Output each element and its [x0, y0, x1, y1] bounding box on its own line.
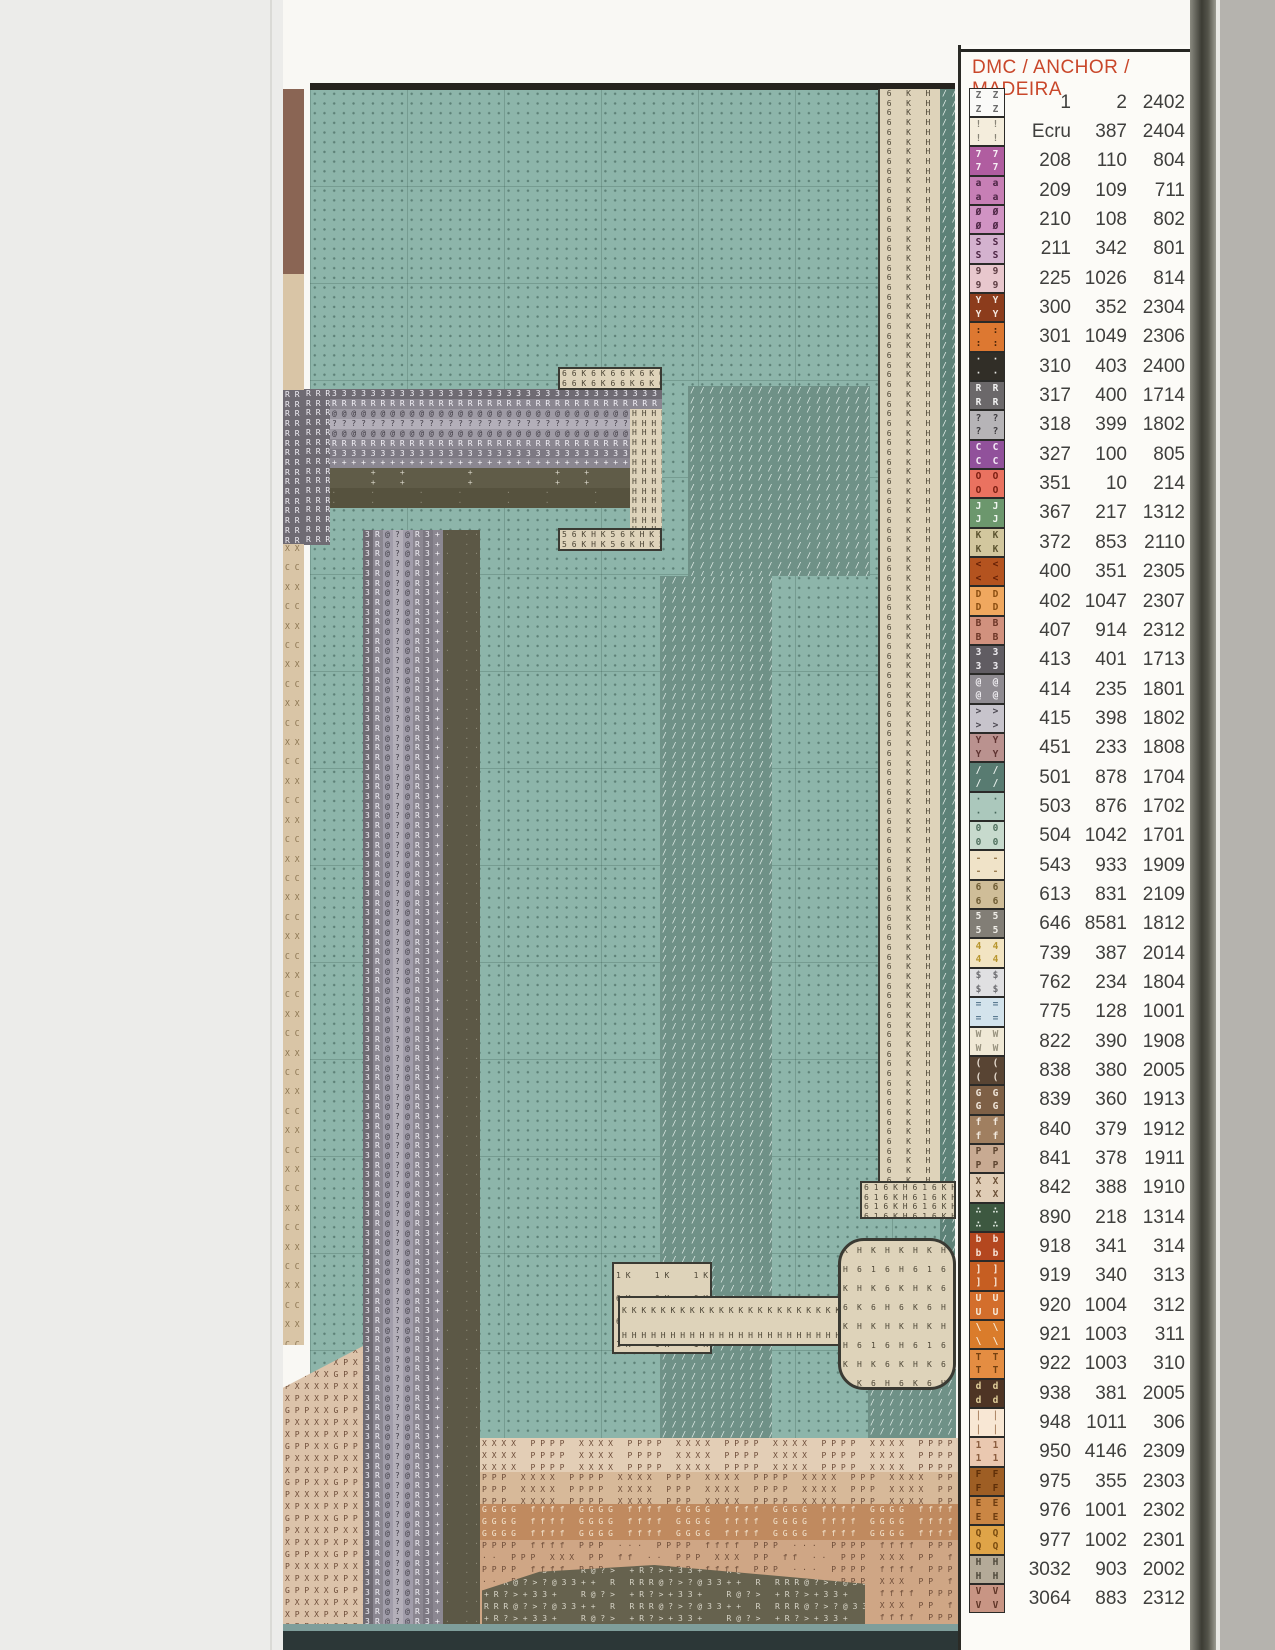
dmc-value: 301: [1015, 326, 1071, 348]
madeira-value: 1909: [1127, 855, 1185, 877]
pole-shadow-column: · ·· · · · · ·· · · · · ·· · · · · ·· · …: [443, 530, 480, 1650]
symbol-glyph: =: [993, 1000, 999, 1009]
symbol-glyph: Z: [976, 91, 982, 100]
crossarm-row-at-top: @@@@@@@@@@@@@@@@@@@@@@@@@@@@@@@@@@@@@ @@…: [330, 409, 662, 419]
madeira-value: 805: [1127, 444, 1185, 466]
dmc-value: 400: [1015, 561, 1071, 583]
dmc-value: 413: [1015, 649, 1071, 671]
symbol-glyph: 7: [993, 150, 999, 159]
symbol-glyph: W: [976, 1044, 982, 1053]
symbol-glyph: $: [993, 971, 999, 980]
symbol-glyph: 6: [993, 897, 999, 906]
symbol-glyph: U: [993, 1294, 999, 1303]
madeira-value: 1804: [1127, 972, 1185, 994]
legend-swatch: 3 3 3 3: [969, 645, 1005, 674]
legend-swatch: D D D D: [969, 586, 1005, 615]
anchor-value: 831: [1071, 884, 1127, 906]
symbol-glyph: f: [993, 1132, 999, 1141]
anchor-value: 217: [1071, 502, 1127, 524]
symbol-glyph: ·: [976, 369, 982, 378]
symbol-glyph: Y: [993, 310, 999, 319]
anchor-value: 1047: [1071, 591, 1127, 613]
legend-swatch: 5 5 5 5: [969, 909, 1005, 938]
symbol-glyph: C: [976, 457, 982, 466]
madeira-value: 2309: [1127, 1441, 1185, 1463]
symbol-glyph: 7: [993, 163, 999, 172]
symbol-glyph: -: [976, 867, 982, 876]
symbol-glyph: S: [976, 238, 982, 247]
symbol-glyph: <: [993, 560, 999, 569]
legend-row: · · · · 310 403 2400: [969, 352, 1186, 381]
legend-row: 4 4 4 4 739 387 2014: [969, 939, 1186, 968]
symbol-glyph: ·: [976, 355, 982, 364]
symbol-glyph: b: [993, 1249, 999, 1258]
symbol-glyph: G: [976, 1102, 982, 1111]
symbol-glyph: R: [993, 384, 999, 393]
anchor-value: 1049: [1071, 326, 1127, 348]
symbol-glyph: a: [976, 193, 982, 202]
anchor-value: 398: [1071, 708, 1127, 730]
legend-swatch: 9 9 9 9: [969, 264, 1005, 293]
symbol-glyph: |: [976, 1411, 982, 1420]
legend-row: 7 7 7 7 208 110 804: [969, 147, 1186, 176]
symbol-glyph: b: [976, 1235, 982, 1244]
symbol-glyph: K: [993, 531, 999, 540]
symbol-glyph: F: [976, 1484, 982, 1493]
dmc-value: 919: [1015, 1265, 1071, 1287]
madeira-value: 2301: [1127, 1530, 1185, 1552]
madeira-value: 1913: [1127, 1089, 1185, 1111]
symbol-glyph: !: [976, 134, 982, 143]
madeira-value: 2307: [1127, 591, 1185, 613]
legend-row: V V V V 3064 883 2312: [969, 1585, 1186, 1614]
legend-swatch: J J J J: [969, 498, 1005, 527]
madeira-value: 2304: [1127, 297, 1185, 319]
octagon-joint: KHKHKHKHKHK H616H616H61 KHK6KHK6KHK 6K6H…: [838, 1238, 956, 1390]
symbol-glyph: K: [976, 545, 982, 554]
symbol-glyph: a: [976, 179, 982, 188]
legend-row: F F F F 975 355 2303: [969, 1467, 1186, 1496]
legend-row: > > > > 415 398 1802: [969, 704, 1186, 733]
symbol-glyph: G: [993, 1089, 999, 1098]
dmc-value: 646: [1015, 913, 1071, 935]
book-spine-edge: [1190, 0, 1216, 1650]
legend-row: P P P P 841 378 1911: [969, 1144, 1186, 1173]
symbol-glyph: R: [976, 398, 982, 407]
symbol-glyph: $: [976, 971, 982, 980]
dmc-value: 300: [1015, 297, 1071, 319]
anchor-value: 2: [1071, 92, 1127, 114]
anchor-value: 110: [1071, 150, 1127, 172]
symbol-glyph: J: [976, 515, 982, 524]
symbol-glyph: Q: [993, 1542, 999, 1551]
dmc-value: 922: [1015, 1353, 1071, 1375]
symbol-glyph: V: [993, 1601, 999, 1610]
anchor-value: 352: [1071, 297, 1127, 319]
madeira-value: 1910: [1127, 1177, 1185, 1199]
symbol-glyph: 1: [993, 1441, 999, 1450]
madeira-value: 1312: [1127, 502, 1185, 524]
symbol-glyph: Y: [993, 736, 999, 745]
legend-row: · · · · 503 876 1702: [969, 792, 1186, 821]
legend-row: Y Y Y Y 451 233 1808: [969, 734, 1186, 763]
anchor-value: 387: [1071, 943, 1127, 965]
legend-row: J J J J 367 217 1312: [969, 499, 1186, 528]
symbol-glyph: Q: [976, 1542, 982, 1551]
symbol-glyph: !: [976, 120, 982, 129]
symbol-glyph: 7: [976, 163, 982, 172]
symbol-glyph: R: [976, 384, 982, 393]
symbol-glyph: a: [993, 193, 999, 202]
dmc-value: Ecru: [1015, 121, 1071, 143]
legend-row: T T T T 922 1003 310: [969, 1350, 1186, 1379]
anchor-value: 401: [1071, 649, 1127, 671]
symbol-glyph: ·: [993, 355, 999, 364]
anchor-value: 1003: [1071, 1324, 1127, 1346]
legend-row: : : : : 301 1049 2306: [969, 323, 1186, 352]
symbol-glyph: 4: [993, 942, 999, 951]
madeira-value: 2005: [1127, 1383, 1185, 1405]
symbol-glyph: V: [993, 1587, 999, 1596]
symbol-glyph: 6: [993, 883, 999, 892]
symbol-glyph: J: [976, 502, 982, 511]
dmc-value: 950: [1015, 1441, 1071, 1463]
madeira-value: 1912: [1127, 1119, 1185, 1141]
legend-swatch: 1 1 1 1: [969, 1437, 1005, 1466]
legend-row: U U U U 920 1004 312: [969, 1291, 1186, 1320]
crossarm-shadow-upper: + + + + + + + + + + + + + + + + + +: [330, 468, 662, 488]
symbol-glyph: <: [976, 574, 982, 583]
terrain-right-band-x: XXXX PPPP XXXX PPPP XXXX PPPP XXXX PPPP …: [480, 1438, 958, 1472]
legend-row: @ @ @ @ 414 235 1801: [969, 675, 1186, 704]
legend-row: G G G G 839 360 1913: [969, 1086, 1186, 1115]
symbol-glyph: :: [976, 339, 982, 348]
symbol-glyph: H: [993, 1558, 999, 1567]
symbol-glyph: f: [976, 1118, 982, 1127]
legend-swatch: d d d d: [969, 1379, 1005, 1408]
symbol-glyph: 4: [976, 955, 982, 964]
symbol-glyph: S: [993, 238, 999, 247]
symbol-glyph: X: [976, 1190, 982, 1199]
legend-swatch: | | | |: [969, 1408, 1005, 1437]
madeira-value: 1802: [1127, 708, 1185, 730]
legend-row: a a a a 209 109 711: [969, 176, 1186, 205]
dmc-value: 839: [1015, 1089, 1071, 1111]
left-edge-strip-brown: [283, 89, 304, 274]
anchor-value: 390: [1071, 1031, 1127, 1053]
symbol-glyph: P: [993, 1147, 999, 1156]
symbol-glyph: U: [976, 1308, 982, 1317]
dmc-value: 310: [1015, 356, 1071, 378]
symbol-glyph: 9: [993, 281, 999, 290]
symbol-glyph: 6: [976, 883, 982, 892]
anchor-value: 400: [1071, 385, 1127, 407]
legend-row: $ $ $ $ 762 234 1804: [969, 968, 1186, 997]
dmc-value: 225: [1015, 268, 1071, 290]
legend-swatch: 0 0 0 0: [969, 821, 1005, 850]
symbol-glyph: ]: [993, 1265, 999, 1274]
madeira-value: 2305: [1127, 561, 1185, 583]
anchor-value: 399: [1071, 414, 1127, 436]
legend-swatch: = = = =: [969, 997, 1005, 1026]
legend-row: / / / / 501 878 1704: [969, 763, 1186, 792]
pole-col-3-right: 3333 3333 3333 3333 3333 3333 3333 3333 …: [423, 530, 433, 1650]
symbol-glyph: >: [993, 707, 999, 716]
symbol-glyph: |: [976, 1425, 982, 1434]
crossarm-end-steps-top: 66K6K66K6K66K 66K6K66K6K66K 66K6K66K6K66…: [558, 367, 662, 390]
symbol-glyph: $: [993, 985, 999, 994]
dmc-value: 211: [1015, 238, 1071, 260]
symbol-glyph: G: [993, 1102, 999, 1111]
legend-swatch: ( ( ( (: [969, 1056, 1005, 1085]
symbol-glyph: O: [993, 486, 999, 495]
anchor-value: 914: [1071, 620, 1127, 642]
legend-swatch: @ @ @ @: [969, 674, 1005, 703]
madeira-value: 2400: [1127, 356, 1185, 378]
madeira-value: 2109: [1127, 884, 1185, 906]
pole-col-plus: ++++ ++++ ++++ ++++ ++++ ++++ ++++ ++++ …: [433, 530, 443, 1650]
symbol-glyph: H: [976, 1558, 982, 1567]
legend-row: C C C C 327 100 805: [969, 440, 1186, 469]
legend-swatch: B B B B: [969, 616, 1005, 645]
dmc-value: 504: [1015, 825, 1071, 847]
symbol-glyph: S: [993, 251, 999, 260]
madeira-value: 1908: [1127, 1031, 1185, 1053]
symbol-glyph: 5: [976, 926, 982, 935]
symbol-glyph: P: [993, 1161, 999, 1170]
anchor-value: 108: [1071, 209, 1127, 231]
symbol-glyph: Y: [976, 310, 982, 319]
symbol-glyph: 1: [976, 1441, 982, 1450]
madeira-value: 2312: [1127, 1588, 1185, 1610]
anchor-value: 387: [1071, 121, 1127, 143]
symbol-glyph: O: [993, 472, 999, 481]
symbol-glyph: P: [976, 1161, 982, 1170]
symbol-glyph: (: [993, 1059, 999, 1068]
symbol-glyph: <: [993, 574, 999, 583]
symbol-glyph: 5: [993, 926, 999, 935]
dmc-value: 402: [1015, 591, 1071, 613]
anchor-value: 1042: [1071, 825, 1127, 847]
legend-swatch: > > > >: [969, 704, 1005, 733]
madeira-value: 801: [1127, 238, 1185, 260]
legend-row: ? ? ? ? 318 399 1802: [969, 411, 1186, 440]
legend-swatch: Z Z Z Z: [969, 88, 1005, 117]
anchor-value: 388: [1071, 1177, 1127, 1199]
symbol-glyph: f: [993, 1118, 999, 1127]
madeira-value: 2404: [1127, 121, 1185, 143]
dmc-value: 948: [1015, 1412, 1071, 1434]
legend-row: d d d d 938 381 2005: [969, 1379, 1186, 1408]
symbol-glyph: <: [976, 560, 982, 569]
symbol-glyph: /: [976, 779, 982, 788]
symbol-glyph: K: [993, 545, 999, 554]
madeira-value: 1701: [1127, 825, 1185, 847]
legend-row: b b b b 918 341 314: [969, 1232, 1186, 1261]
legend-row: D D D D 402 1047 2307: [969, 587, 1186, 616]
symbol-glyph: 1: [993, 1454, 999, 1463]
symbol-glyph: W: [993, 1044, 999, 1053]
symbol-glyph: \: [976, 1323, 982, 1332]
symbol-glyph: Ø: [993, 222, 999, 231]
legend-swatch: H H H H: [969, 1555, 1005, 1584]
symbol-glyph: \: [993, 1323, 999, 1332]
anchor-value: 128: [1071, 1001, 1127, 1023]
symbol-glyph: >: [993, 721, 999, 730]
symbol-glyph: ∴: [993, 1220, 999, 1229]
legend-row: E E E E 976 1001 2302: [969, 1497, 1186, 1526]
madeira-value: 2002: [1127, 1559, 1185, 1581]
symbol-glyph: (: [976, 1059, 982, 1068]
dmc-value: 921: [1015, 1324, 1071, 1346]
legend-swatch: ∴ ∴ ∴ ∴: [969, 1203, 1005, 1232]
madeira-value: 2402: [1127, 92, 1185, 114]
left-edge-strip-gray: RRRRR RRRRR RRRRR RRRRR RRRRR RRRRR RRRR…: [283, 390, 304, 544]
symbol-glyph: d: [993, 1382, 999, 1391]
madeira-value: 1911: [1127, 1148, 1185, 1170]
symbol-glyph: J: [993, 502, 999, 511]
symbol-glyph: ]: [993, 1278, 999, 1287]
symbol-glyph: Y: [993, 296, 999, 305]
crossarm-row-3-top: 3333333333333333333333333333333333333 33…: [330, 389, 662, 399]
anchor-value: 853: [1071, 532, 1127, 554]
legend-row: \ \ \ \ 921 1003 311: [969, 1320, 1186, 1349]
pole-col-r-left: RRRR RRRR RRRR RRRR RRRR RRRR RRRR RRRR …: [373, 530, 383, 1650]
symbol-glyph: Y: [976, 296, 982, 305]
legend-row: 9 9 9 9 225 1026 814: [969, 264, 1186, 293]
anchor-value: 1002: [1071, 1530, 1127, 1552]
symbol-glyph: (: [993, 1073, 999, 1082]
legend-swatch: S S S S: [969, 234, 1005, 263]
crossarm-end-kh-strip: HHHHHH HHHHHH HHHHHH HHHHHH HHHHHH HHHHH…: [630, 409, 662, 529]
chart-top-border: [310, 83, 955, 90]
symbol-glyph: b: [993, 1235, 999, 1244]
symbol-glyph: -: [976, 854, 982, 863]
legend-row: B B B B 407 914 2312: [969, 616, 1186, 645]
symbol-glyph: Ø: [993, 208, 999, 217]
symbol-glyph: ]: [976, 1278, 982, 1287]
legend-row: 5 5 5 5 646 8581 1812: [969, 910, 1186, 939]
symbol-glyph: @: [993, 678, 999, 687]
legend-row: ∴ ∴ ∴ ∴ 890 218 1314: [969, 1203, 1186, 1232]
symbol-glyph: C: [993, 457, 999, 466]
symbol-glyph: 9: [976, 267, 982, 276]
symbol-glyph: E: [993, 1513, 999, 1522]
anchor-value: 903: [1071, 1559, 1127, 1581]
anchor-value: 1026: [1071, 268, 1127, 290]
dmc-value: 208: [1015, 150, 1071, 172]
legend-swatch: U U U U: [969, 1291, 1005, 1320]
symbol-glyph: \: [993, 1337, 999, 1346]
symbol-glyph: |: [993, 1425, 999, 1434]
symbol-glyph: Y: [976, 736, 982, 745]
dmc-value: 3032: [1015, 1559, 1071, 1581]
symbol-glyph: B: [993, 619, 999, 628]
crossarm-row-r-bottom: RRRRRRRRRRRRRRRRRRRRRRRRRRRRRRRRRRRRR RR…: [330, 439, 662, 449]
madeira-value: 214: [1127, 473, 1185, 495]
symbol-glyph: /: [976, 766, 982, 775]
left-edge-strip-lower: XXXXX CCCCC XXXXX CCCCC XXXXX CCCCC XXXX…: [283, 544, 304, 1345]
anchor-value: 1003: [1071, 1353, 1127, 1375]
legend-swatch: R R R R: [969, 381, 1005, 410]
symbol-glyph: C: [976, 443, 982, 452]
right-border-slash-column: //// //// //// //// //// //// //// //// …: [940, 89, 955, 1369]
symbol-glyph: -: [993, 867, 999, 876]
dmc-value: 209: [1015, 180, 1071, 202]
anchor-value: 342: [1071, 238, 1127, 260]
book-edge-highlight: [1216, 0, 1275, 1650]
symbol-glyph: V: [976, 1601, 982, 1610]
dmc-value: 367: [1015, 502, 1071, 524]
crossarm-shadow-lower: · · · · · · · · · · · · · · · · · · · · …: [310, 488, 662, 508]
anchor-value: 340: [1071, 1265, 1127, 1287]
dmc-value: 415: [1015, 708, 1071, 730]
symbol-glyph: :: [993, 339, 999, 348]
legend-row: - - - - 543 933 1909: [969, 851, 1186, 880]
legend-swatch: b b b b: [969, 1232, 1005, 1261]
symbol-glyph: ?: [993, 427, 999, 436]
madeira-value: 1704: [1127, 767, 1185, 789]
symbol-glyph: Y: [993, 750, 999, 759]
legend-swatch: / / / /: [969, 762, 1005, 791]
dmc-value: 351: [1015, 473, 1071, 495]
legend-swatch: 6 6 6 6: [969, 880, 1005, 909]
anchor-value: 883: [1071, 1588, 1127, 1610]
madeira-value: 814: [1127, 268, 1185, 290]
legend-swatch: a a a a: [969, 176, 1005, 205]
dmc-value: 210: [1015, 209, 1071, 231]
madeira-value: 2303: [1127, 1471, 1185, 1493]
legend-swatch: 4 4 4 4: [969, 938, 1005, 967]
anchor-value: 1004: [1071, 1295, 1127, 1317]
madeira-value: 2312: [1127, 620, 1185, 642]
legend-swatch: K K K K: [969, 528, 1005, 557]
symbol-glyph: !: [993, 134, 999, 143]
legend-swatch: Y Y Y Y: [969, 733, 1005, 762]
madeira-value: 1714: [1127, 385, 1185, 407]
legend-swatch: \ \ \ \: [969, 1320, 1005, 1349]
symbol-glyph: ?: [993, 414, 999, 423]
terrain-right-band-p: PPP XXXX PPPP XXXX PPP XXXX PPPP XXXX PP…: [480, 1472, 958, 1504]
anchor-value: 360: [1071, 1089, 1127, 1111]
symbol-glyph: B: [976, 633, 982, 642]
symbol-glyph: T: [993, 1366, 999, 1375]
madeira-value: 311: [1127, 1324, 1185, 1346]
symbol-glyph: |: [993, 1411, 999, 1420]
symbol-glyph: 4: [993, 955, 999, 964]
anchor-value: 355: [1071, 1471, 1127, 1493]
symbol-glyph: ?: [976, 414, 982, 423]
anchor-value: 218: [1071, 1207, 1127, 1229]
symbol-glyph: D: [976, 603, 982, 612]
madeira-value: 2302: [1127, 1500, 1185, 1522]
legend-rows: Z Z Z Z 1 2 2402 ! ! ! ! Ecru 387 2404 7…: [969, 88, 1186, 1614]
symbol-glyph: T: [976, 1366, 982, 1375]
legend-row: 6 6 6 6 613 831 2109: [969, 880, 1186, 909]
legend-row: R R R R 317 400 1714: [969, 381, 1186, 410]
legend-swatch: f f f f: [969, 1115, 1005, 1144]
anchor-value: 1011: [1071, 1412, 1127, 1434]
symbol-glyph: /: [993, 766, 999, 775]
symbol-glyph: 3: [993, 648, 999, 657]
madeira-value: 306: [1127, 1412, 1185, 1434]
crossarm-row-r-top: RRRRRRRRRRRRRRRRRRRRRRRRRRRRRRRRRRRRR RR…: [330, 399, 662, 409]
symbol-glyph: D: [976, 590, 982, 599]
dmc-value: 975: [1015, 1471, 1071, 1493]
symbol-glyph: $: [976, 985, 982, 994]
legend-swatch: P P P P: [969, 1144, 1005, 1173]
symbol-glyph: =: [976, 1000, 982, 1009]
